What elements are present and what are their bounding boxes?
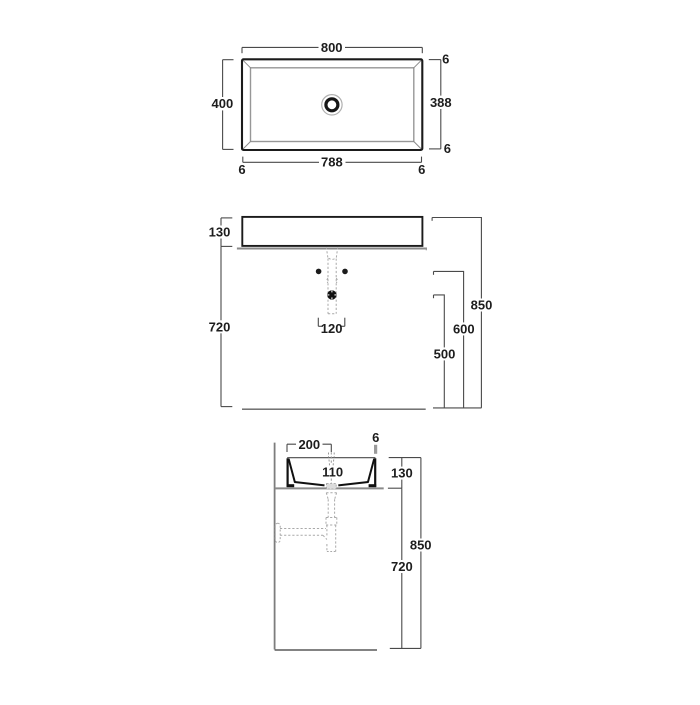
svg-text:6: 6 — [444, 141, 451, 156]
svg-text:200: 200 — [298, 437, 320, 452]
svg-text:500: 500 — [434, 346, 456, 361]
svg-text:110: 110 — [322, 464, 343, 479]
svg-text:800: 800 — [321, 40, 343, 55]
svg-text:400: 400 — [212, 96, 234, 111]
svg-text:600: 600 — [453, 321, 475, 336]
svg-text:130: 130 — [391, 466, 413, 481]
svg-text:6: 6 — [372, 430, 379, 445]
svg-text:850: 850 — [471, 298, 493, 313]
svg-text:720: 720 — [209, 319, 231, 334]
svg-text:850: 850 — [410, 538, 432, 553]
svg-text:6: 6 — [442, 51, 449, 66]
svg-text:6: 6 — [418, 162, 425, 177]
svg-text:130: 130 — [209, 225, 231, 240]
svg-text:6: 6 — [238, 162, 245, 177]
svg-text:388: 388 — [430, 95, 452, 110]
svg-text:788: 788 — [321, 155, 343, 170]
svg-text:720: 720 — [391, 559, 413, 574]
svg-text:120: 120 — [321, 321, 343, 336]
